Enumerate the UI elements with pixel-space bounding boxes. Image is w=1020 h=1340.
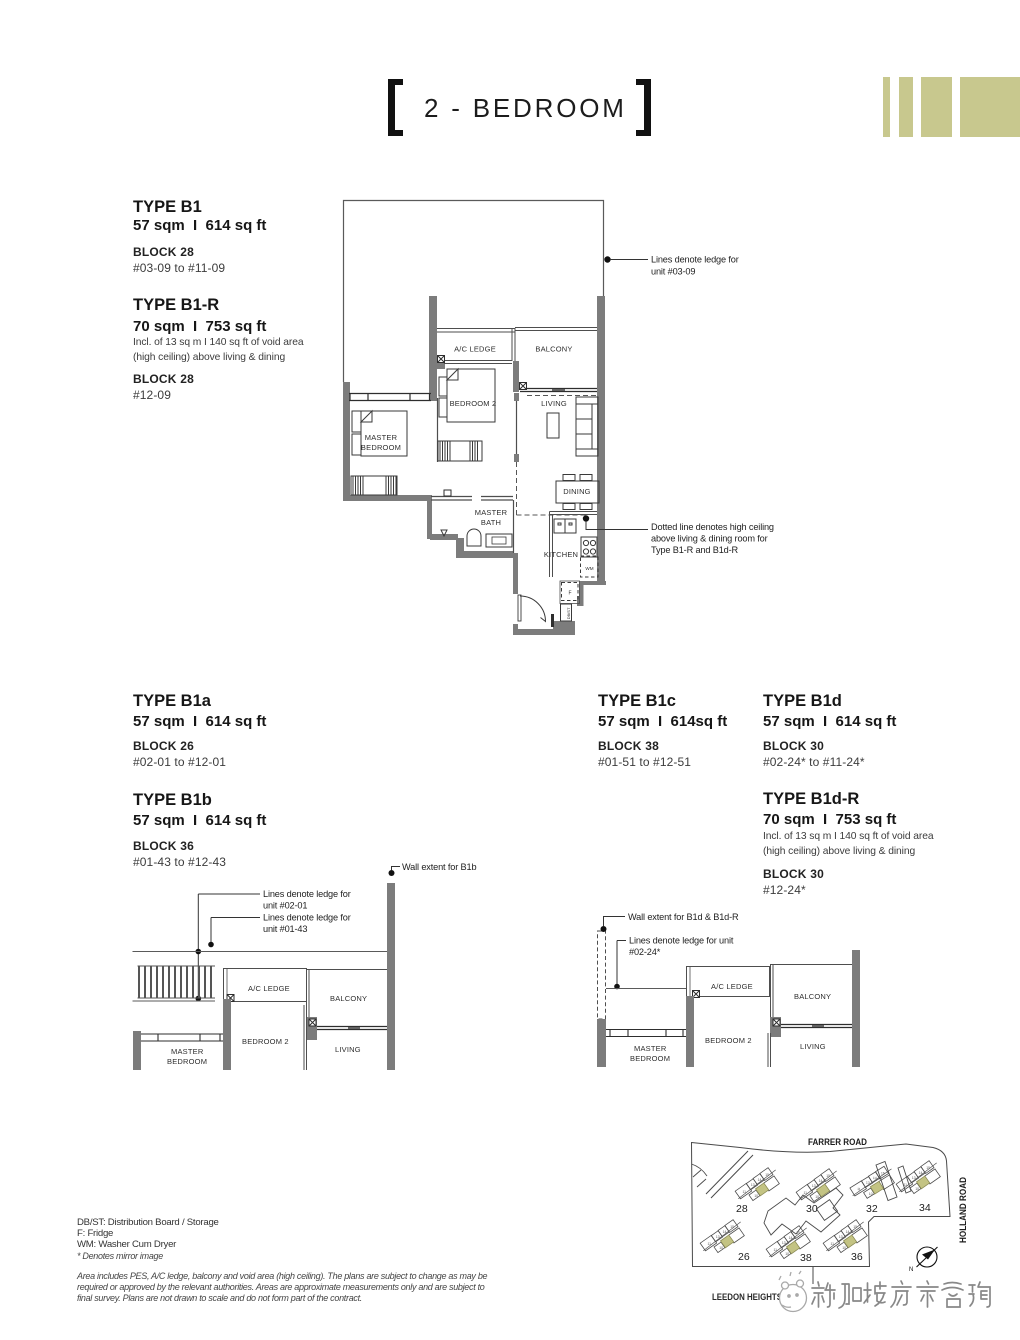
svg-text:BALCONY: BALCONY (330, 994, 367, 1003)
svg-text:HOLLAND ROAD: HOLLAND ROAD (958, 1177, 968, 1243)
svg-text:BEDROOM: BEDROOM (167, 1057, 207, 1066)
svg-text:Lines denote ledge for: Lines denote ledge for (651, 255, 739, 265)
svg-text:N: N (909, 1267, 913, 1273)
svg-text:Dotted line denotes high ceili: Dotted line denotes high ceiling (651, 522, 774, 532)
svg-text:A/C LEDGE: A/C LEDGE (711, 982, 753, 991)
svg-text:34: 34 (919, 1202, 931, 1214)
svg-text:BEDROOM: BEDROOM (361, 443, 401, 452)
svg-text:unit #01-43: unit #01-43 (263, 924, 307, 934)
svg-text:LIVING: LIVING (800, 1042, 826, 1051)
svg-text:BATH: BATH (481, 518, 501, 527)
svg-text:DINING: DINING (563, 487, 590, 496)
svg-text:28: 28 (736, 1203, 748, 1215)
svg-text:BEDROOM 2: BEDROOM 2 (705, 1036, 752, 1045)
svg-text:DB/ST: DB/ST (566, 607, 571, 619)
svg-text:BEDROOM: BEDROOM (630, 1054, 670, 1063)
svg-text:Lines denote ledge for: Lines denote ledge for (263, 913, 351, 923)
svg-text:A/C LEDGE: A/C LEDGE (248, 984, 290, 993)
svg-text:MASTER: MASTER (365, 433, 398, 442)
svg-text:38: 38 (800, 1252, 812, 1264)
svg-text:F: F (568, 591, 571, 597)
svg-text:MASTER: MASTER (475, 508, 508, 517)
svg-text:Wall extent for B1d & B1d-R: Wall extent for B1d & B1d-R (628, 912, 739, 922)
svg-text:30: 30 (806, 1203, 818, 1215)
svg-text:Type B1-R and B1d-R: Type B1-R and B1d-R (651, 545, 739, 555)
svg-text:BEDROOM 2: BEDROOM 2 (450, 399, 497, 408)
svg-text:26: 26 (738, 1251, 750, 1263)
svg-text:BALCONY: BALCONY (535, 345, 572, 354)
svg-text:LIVING: LIVING (541, 399, 567, 408)
svg-text:Lines denote ledge for unit: Lines denote ledge for unit (629, 936, 734, 946)
svg-text:Lines denote ledge for: Lines denote ledge for (263, 889, 351, 899)
svg-text:LEEDON HEIGHTS: LEEDON HEIGHTS (712, 1292, 782, 1302)
svg-text:BALCONY: BALCONY (794, 992, 831, 1001)
svg-text:above living & dining room for: above living & dining room for (651, 534, 768, 544)
svg-text:WM: WM (585, 566, 593, 571)
svg-text:unit #02-01: unit #02-01 (263, 901, 307, 911)
svg-text:unit #03-09: unit #03-09 (651, 267, 695, 277)
svg-text:LIVING: LIVING (335, 1045, 361, 1054)
svg-text:A/C LEDGE: A/C LEDGE (454, 345, 496, 354)
svg-text:MASTER: MASTER (171, 1047, 204, 1056)
svg-text:32: 32 (866, 1203, 878, 1215)
svg-text:KITCHEN: KITCHEN (544, 550, 578, 559)
svg-text:FARRER ROAD: FARRER ROAD (808, 1137, 867, 1147)
svg-text:Wall extent for B1b: Wall extent for B1b (402, 862, 476, 872)
svg-text:BEDROOM 2: BEDROOM 2 (242, 1037, 289, 1046)
svg-text:MASTER: MASTER (634, 1044, 667, 1053)
svg-text:#02-24*: #02-24* (629, 947, 661, 957)
svg-text:36: 36 (851, 1251, 863, 1263)
